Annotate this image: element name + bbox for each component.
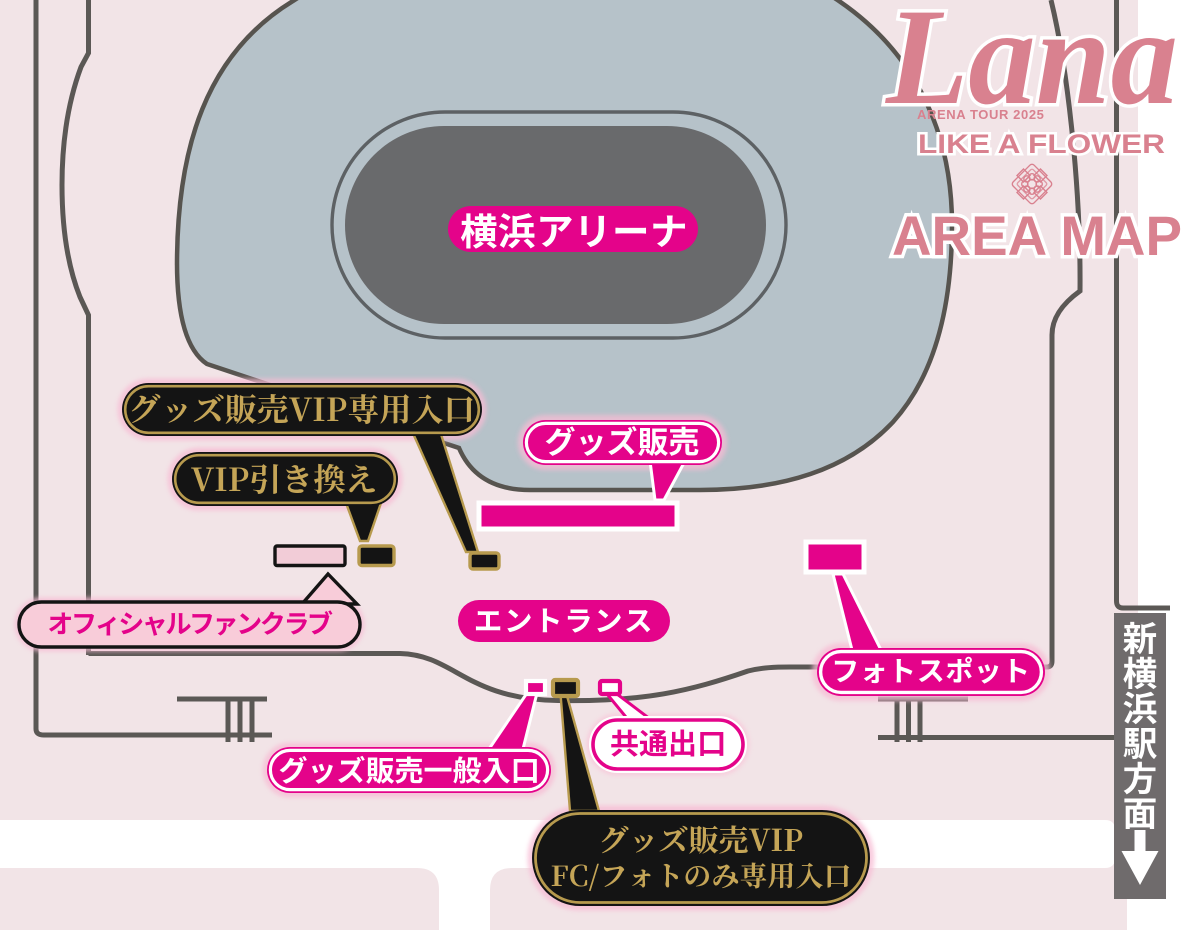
svg-text:フォトスポット: フォトスポット [831,650,1031,690]
svg-text:VIP引き換え: VIP引き換え [191,455,378,501]
svg-text:エントランス: エントランス [474,599,654,640]
svg-text:オフィシャルファンクラブ: オフィシャルファンクラブ [47,604,333,641]
svg-text:グッズ販売VIP: グッズ販売VIP [599,816,804,860]
svg-text:グッズ販売一般入口: グッズ販売一般入口 [278,748,539,790]
svg-text:FC/フォトのみ専用入口: FC/フォトのみ専用入口 [550,855,851,895]
svg-text:AREA MAP: AREA MAP [892,204,1182,267]
svg-text:面: 面 [1123,786,1158,836]
svg-text:グッズ販売VIP専用入口: グッズ販売VIP専用入口 [129,385,476,431]
svg-text:横浜アリーナ: 横浜アリーナ [460,201,688,256]
svg-text:グッズ販売: グッズ販売 [545,417,700,462]
svg-text:共通出口: 共通出口 [610,721,726,763]
svg-text:ARENA TOUR 2025: ARENA TOUR 2025 [917,107,1044,122]
svg-text:LIKE A FLOWER: LIKE A FLOWER [918,129,1165,159]
